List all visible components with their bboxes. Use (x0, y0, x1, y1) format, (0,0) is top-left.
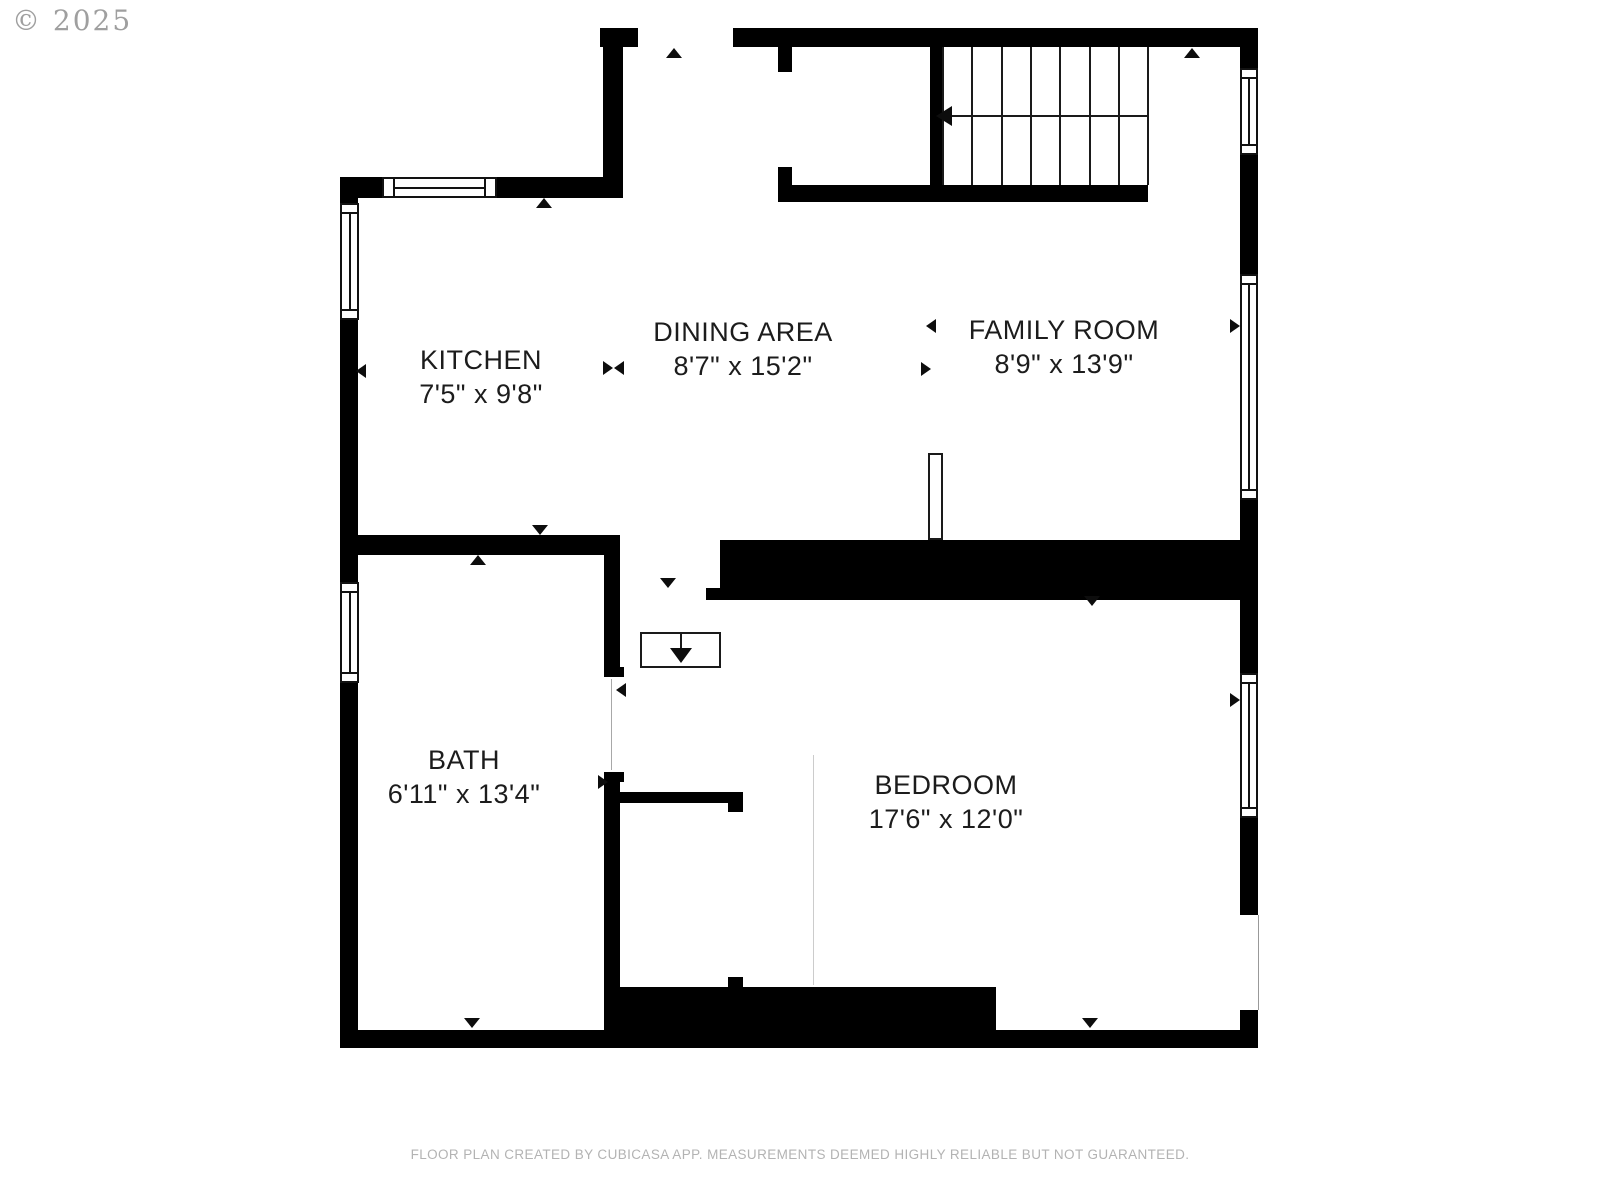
wall-bath-right-upper (604, 535, 620, 677)
dining-name: DINING AREA (653, 315, 833, 349)
window-frame-cap (1242, 77, 1256, 79)
bath-name: BATH (388, 743, 541, 777)
room-label-family-room: FAMILY ROOM 8'9" x 13'9" (969, 313, 1160, 381)
room-label-bath: BATH 6'11" x 13'4" (388, 743, 541, 811)
footer-disclaimer: FLOOR PLAN CREATED BY CUBICASA APP. MEAS… (411, 1147, 1190, 1162)
copyright-watermark: © 2025 (12, 4, 132, 37)
floor-plan: © 2025 FLOOR PLAN CREATED BY CUBICASA AP… (0, 0, 1600, 1200)
window-frame-cap (1242, 144, 1256, 146)
marker-arrow-left-dining-family (926, 319, 936, 333)
wall-kitchen-bath-divider (340, 535, 619, 555)
bath-door-leaf-line (611, 679, 612, 770)
window-frame-cap (393, 179, 395, 196)
bedroom-name: BEDROOM (869, 768, 1024, 802)
stairs-direction-arrow (936, 106, 952, 126)
marker-arrow-kitchen-dining-a (603, 361, 613, 375)
room-label-kitchen: KITCHEN 7'5" x 9'8" (419, 343, 543, 411)
wall-bottom-exterior (340, 1030, 1258, 1048)
marker-arrow-down-bath-bottom (464, 1018, 480, 1028)
marker-arrow-right-bedroom-wall (1230, 693, 1240, 707)
window-kitchen-left (340, 203, 359, 320)
wall-bedroom-bottom-band (618, 987, 996, 1030)
wall-landing-left-top (778, 47, 792, 72)
marker-arrow-kitchen-dining-b (614, 361, 624, 375)
marker-arrow-down-bedroom-top (1084, 596, 1100, 606)
window-bath-left (340, 582, 359, 683)
wall-closet-top (618, 792, 730, 803)
marker-arrow-left-kitchen-wall (356, 364, 366, 378)
wall-top-right-segment (733, 28, 1258, 47)
window-frame-cap (484, 179, 486, 196)
window-frame-cap (342, 672, 357, 674)
kitchen-name: KITCHEN (419, 343, 543, 377)
room-label-dining-area: DINING AREA 8'7" x 15'2" (653, 315, 833, 383)
window-frame-cap (1242, 283, 1256, 285)
entry-step-arrow (670, 648, 692, 663)
entry-opening-top (638, 28, 733, 47)
window-bedroom-right (1240, 673, 1258, 818)
window-frame-cap (1242, 489, 1256, 491)
marker-arrow-down-bedroom-bottom (1082, 1018, 1098, 1028)
wall-upper-left (603, 28, 623, 198)
bedroom-dimensions: 17'6" x 12'0" (869, 802, 1024, 836)
dining-dimensions: 8'7" x 15'2" (653, 349, 833, 383)
window-frame-cap (1242, 682, 1256, 684)
marker-arrow-up-entry (666, 48, 682, 58)
window-glass-line (1248, 79, 1250, 144)
closet-door-jamb-top (728, 792, 743, 812)
window-right-upper (1240, 68, 1258, 155)
window-glass-line (349, 593, 351, 672)
family-name: FAMILY ROOM (969, 313, 1160, 347)
window-frame-cap (342, 309, 357, 311)
family-dimensions: 8'9" x 13'9" (969, 347, 1160, 381)
stairs-direction-line (950, 115, 1148, 117)
marker-arrow-right-family-wall (1230, 319, 1240, 333)
window-frame-cap (342, 591, 357, 593)
marker-arrow-down-hall-opening (660, 578, 676, 588)
marker-arrow-down-kitchen-bottom (532, 525, 548, 535)
wall-right-exterior (1240, 28, 1258, 1048)
railing-half-wall (928, 453, 943, 540)
kitchen-dimensions: 7'5" x 9'8" (419, 377, 543, 411)
marker-arrow-up-top-right (1184, 48, 1200, 58)
window-family-room-right (1240, 274, 1258, 500)
window-frame-cap (342, 212, 357, 214)
window-glass-line (1248, 285, 1250, 489)
wall-dining-bedroom-divider (720, 540, 1258, 600)
window-glass-line (393, 187, 486, 189)
bath-door-jamb-top (604, 667, 624, 677)
bedroom-door-swing-line (813, 755, 814, 985)
marker-arrow-up-bath-top (470, 555, 486, 565)
closet-door-jamb-bottom (728, 977, 743, 987)
room-label-bedroom: BEDROOM 17'6" x 12'0" (869, 768, 1024, 836)
bath-dimensions: 6'11" x 13'4" (388, 777, 541, 811)
marker-arrow-right-bath-door (598, 775, 608, 789)
window-kitchen-top (382, 177, 497, 198)
landing-door-opening (778, 72, 792, 167)
window-glass-line (1248, 684, 1250, 807)
window-frame-cap (1242, 807, 1256, 809)
marker-arrow-left-bath-door (616, 683, 626, 697)
wall-stairs-bottom (778, 185, 1148, 202)
window-glass-line (349, 214, 351, 309)
marker-arrow-right-dining-family (921, 362, 931, 376)
wall-divider-left-step (706, 588, 720, 600)
entry-step (640, 632, 721, 668)
bedroom-exterior-opening (1240, 915, 1259, 1010)
marker-arrow-up-kitchen-top (536, 198, 552, 208)
